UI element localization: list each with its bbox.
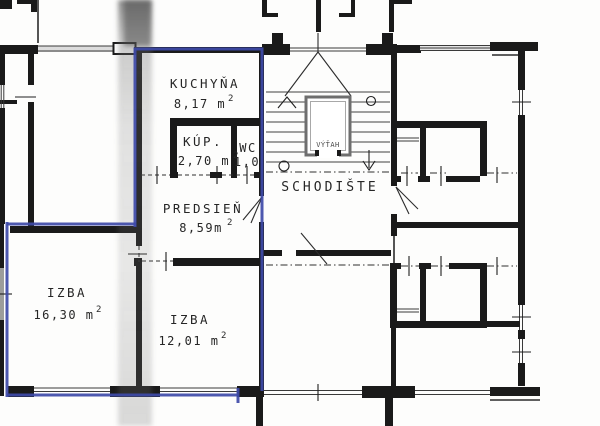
paper-background [0,0,600,426]
hall-label: PREDSIEŇ [163,201,243,216]
room-right-label: IZBA [170,312,210,327]
room-left-area-sup: 2 [96,305,101,315]
wc-area: 1,0 [234,155,260,169]
left-apartment-walls [28,53,34,226]
kitchen-area: 8,17 m [174,97,226,111]
hall-area-sup: 2 [227,218,232,228]
room-right-area-sup: 2 [221,331,226,341]
staircase-label: SCHODIŠTE [281,179,378,195]
kitchen-area-sup: 2 [228,94,233,104]
kitchen-label: KUCHYŇA [170,76,240,91]
floor-plan: VÝŤAH [0,0,600,426]
floor-plan-page: VÝŤAH [0,0,600,426]
wc-label: WC [239,141,256,155]
bathroom-area: 2,70 m [178,154,230,168]
elevator-shaft: VÝŤAH [306,97,350,158]
room-right-area: 12,01 m [158,334,219,348]
elevator-label: VÝŤAH [316,140,340,149]
room-left-area: 16,30 m [33,308,94,322]
hall-area: 8,59m [179,221,223,235]
bathroom-label: KÚP. [183,134,223,149]
room-left-label: IZBA [47,285,87,300]
